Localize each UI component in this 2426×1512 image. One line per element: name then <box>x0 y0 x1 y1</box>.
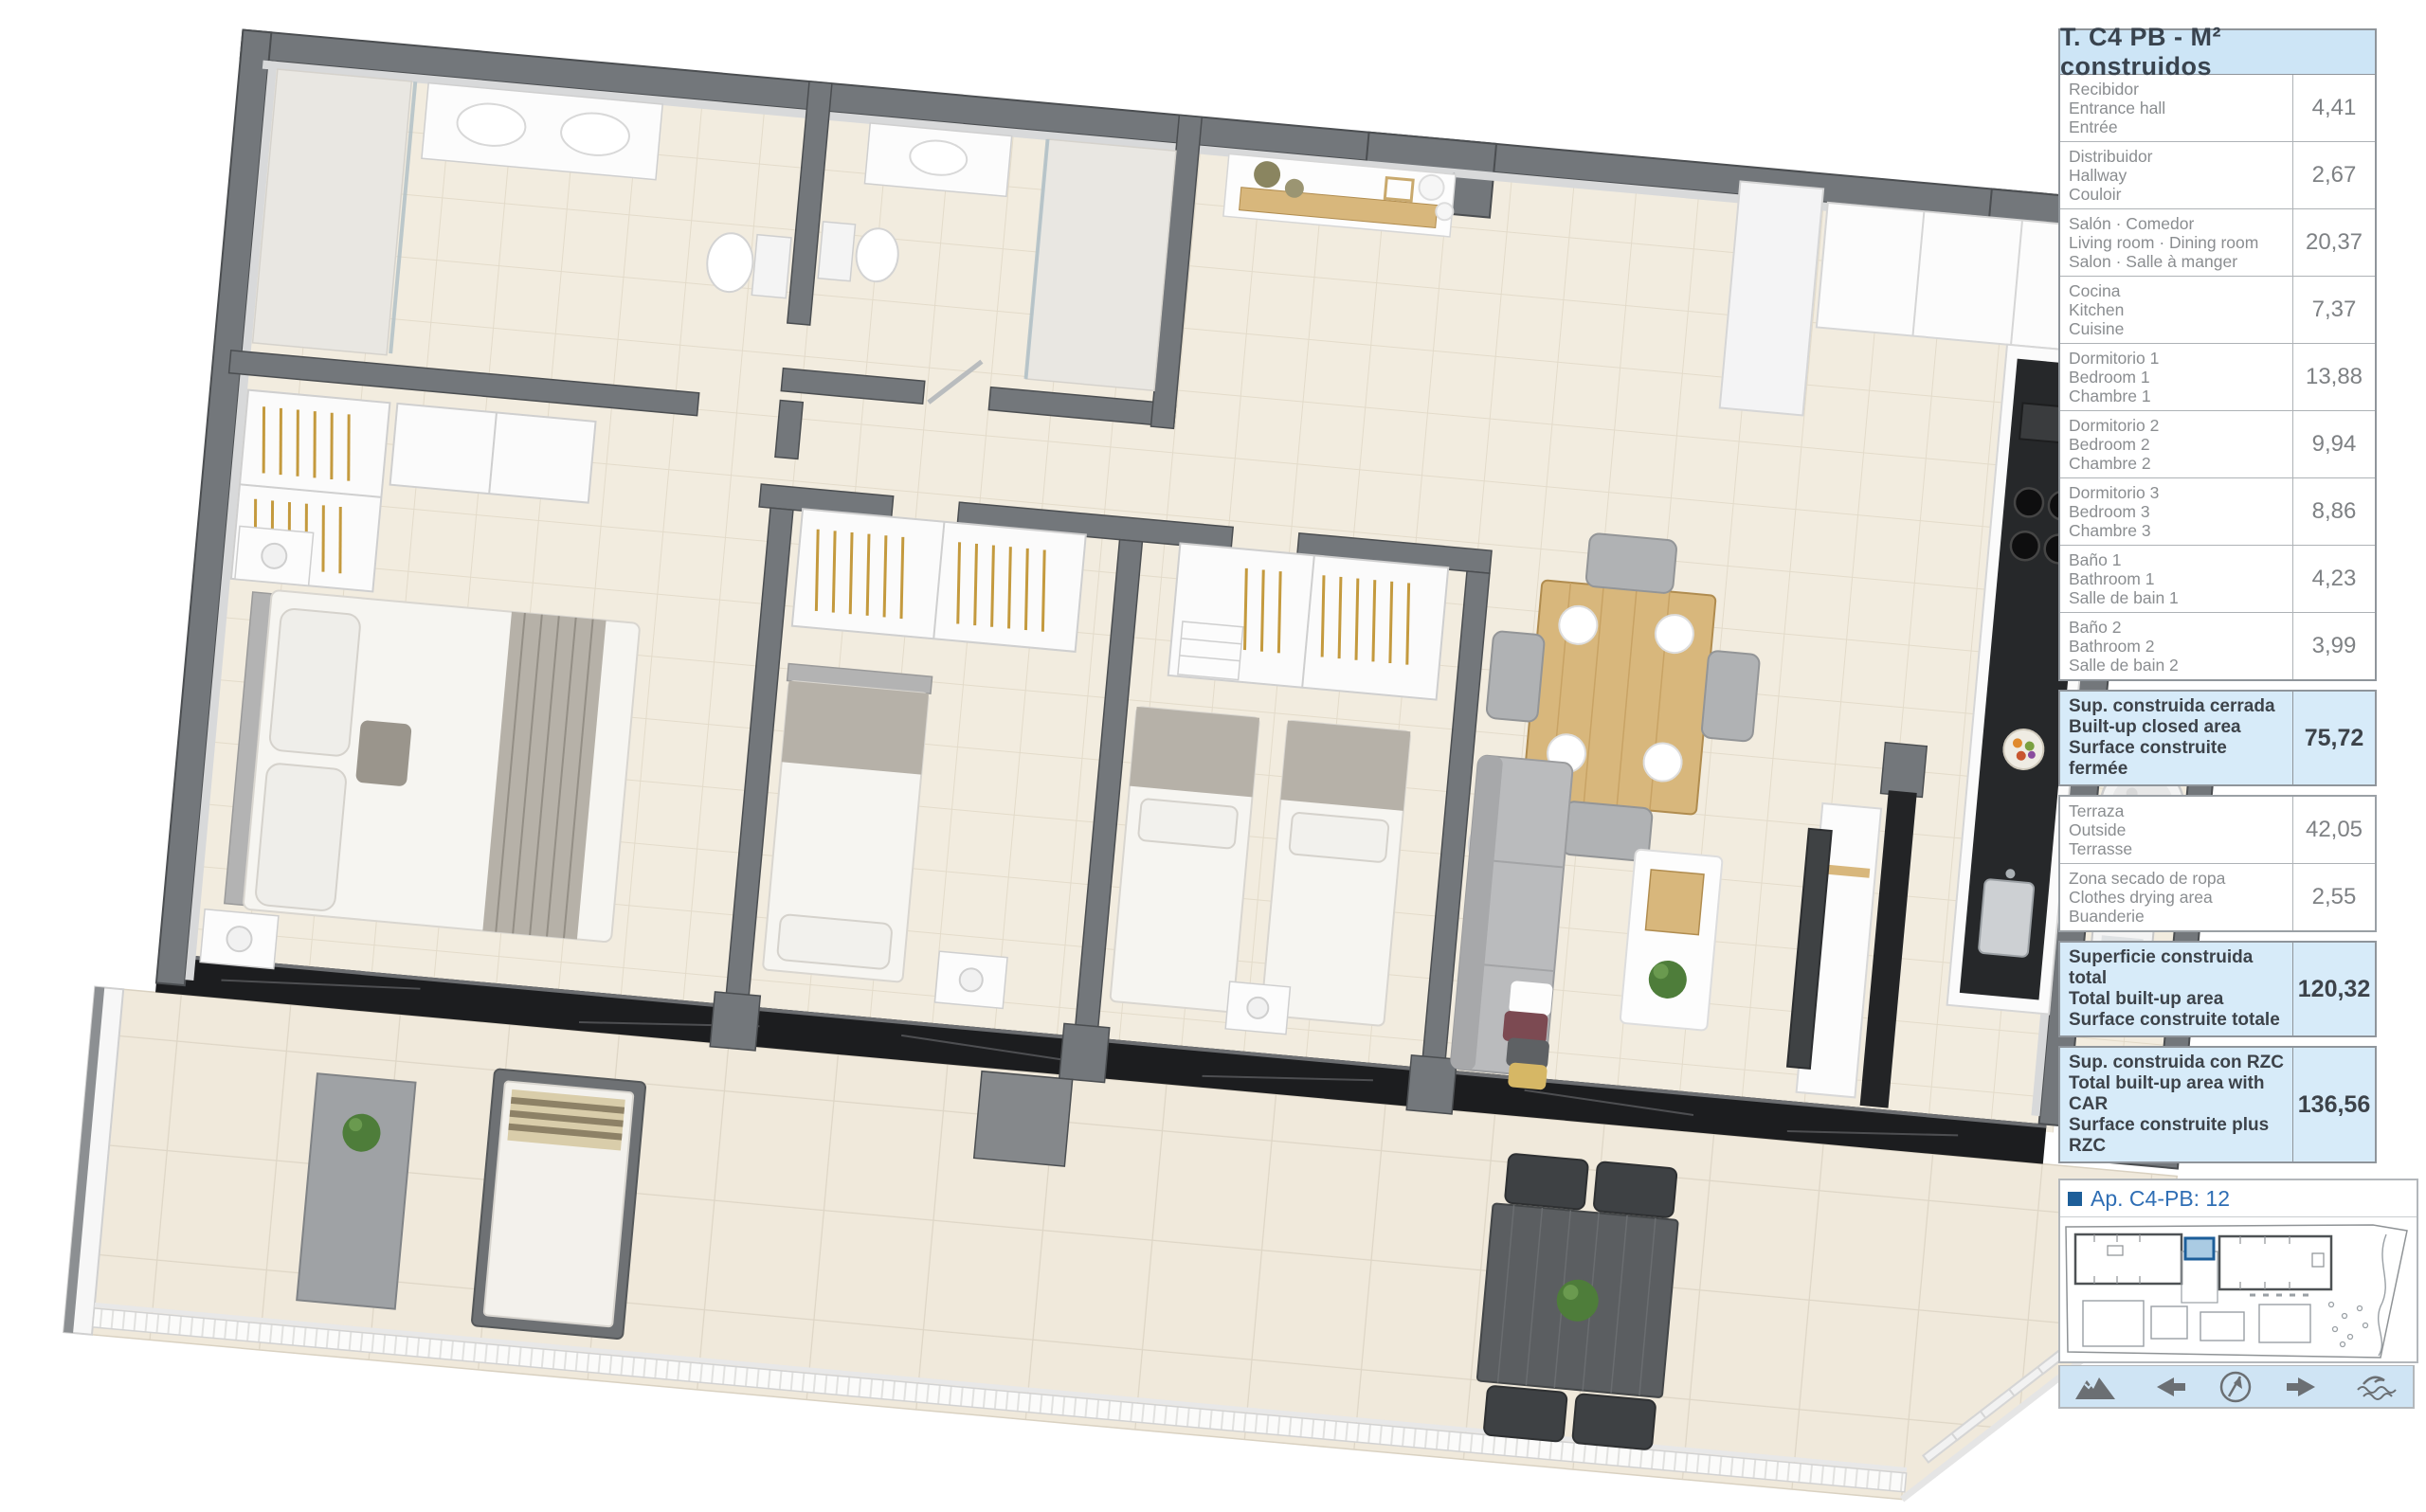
table-row: Baño 1 Bathroom 1 Salle de bain 1 4,23 <box>2060 545 2375 612</box>
pillow <box>255 763 347 911</box>
arrow-left-icon <box>2149 1374 2187 1400</box>
row-label-en: Bedroom 2 <box>2069 435 2287 454</box>
blanket <box>782 681 929 775</box>
table-row: Cocina Kitchen Cuisine 7,37 <box>2060 276 2375 343</box>
pillow <box>777 914 893 969</box>
row-value: 2,55 <box>2292 864 2375 930</box>
row-label-es: Distribuidor <box>2069 147 2287 166</box>
kitchen-sink <box>1979 879 2035 957</box>
pillow <box>1289 812 1389 862</box>
table-row: Dormitorio 3 Bedroom 3 Chambre 3 8,86 <box>2060 477 2375 545</box>
row-label-es: Dormitorio 1 <box>2069 349 2287 368</box>
apartment-ref: Ap. C4-PB: 12 <box>2091 1186 2230 1212</box>
dining-chair <box>1701 650 1760 742</box>
total-area-row: Superficie construida total Total built-… <box>2058 941 2377 1037</box>
row-label-en: Hallway <box>2069 166 2287 185</box>
area-summary-panel: T. C4 PB - M² construidos Recibidor Entr… <box>2058 28 2426 1409</box>
table-header: T. C4 PB - M² construidos <box>2060 30 2375 75</box>
terrace-bench <box>297 1073 415 1308</box>
pillow <box>269 608 361 757</box>
rzc-area-row: Sup. construida con RZC Total built-up a… <box>2058 1046 2377 1163</box>
cushion <box>355 720 412 787</box>
waves-icon <box>2354 1373 2399 1401</box>
row-value: 75,72 <box>2292 692 2375 784</box>
unit-marker-swatch <box>2068 1192 2082 1206</box>
toilet-tank <box>818 222 855 281</box>
location-map-panel: Ap. C4-PB: 12 <box>2058 1179 2418 1363</box>
table-row: Dormitorio 1 Bedroom 1 Chambre 1 13,88 <box>2060 343 2375 410</box>
row-label-fr: Entrée <box>2069 117 2287 136</box>
arrow-right-icon <box>2285 1374 2323 1400</box>
dining-chair <box>1585 533 1677 594</box>
table-lamp <box>1246 997 1269 1019</box>
row-label-en: Total built-up area with CAR <box>2069 1073 2287 1115</box>
row-label-en: Kitchen <box>2069 300 2287 319</box>
table-lamp <box>261 543 287 569</box>
row-value: 20,37 <box>2292 209 2375 276</box>
legend-icon-bar <box>2058 1365 2415 1409</box>
sofa-pillow <box>1508 1062 1548 1090</box>
blanket <box>1280 720 1410 810</box>
sphere-lamp <box>1436 202 1455 221</box>
row-label-en: Bathroom 2 <box>2069 637 2287 656</box>
row-label-fr: Chambre 3 <box>2069 521 2287 540</box>
table-row: Terraza Outside Terrasse 42,05 <box>2060 797 2375 863</box>
row-label-es: Zona secado de ropa <box>2069 869 2287 888</box>
row-value: 120,32 <box>2292 943 2375 1035</box>
row-label-fr: Salle de bain 2 <box>2069 656 2287 675</box>
row-label-en: Bedroom 3 <box>2069 502 2287 521</box>
row-label-es: Sup. construida cerrada <box>2069 696 2287 717</box>
table-row: Recibidor Entrance hall Entrée 4,41 <box>2060 75 2375 141</box>
area-table: T. C4 PB - M² construidos Recibidor Entr… <box>2058 28 2377 681</box>
sphere-lamp <box>1418 174 1444 201</box>
row-value: 9,94 <box>2292 411 2375 477</box>
row-label-fr: Couloir <box>2069 185 2287 204</box>
table-lamp <box>959 967 984 992</box>
row-label-es: Dormitorio 2 <box>2069 416 2287 435</box>
dining-chair <box>1486 631 1545 723</box>
pillow <box>1138 799 1239 849</box>
toilet-tank <box>751 235 791 298</box>
mountains-icon <box>2073 1373 2117 1401</box>
row-label-fr: Surface construite plus RZC <box>2069 1115 2287 1157</box>
row-label-es: Baño 1 <box>2069 550 2287 569</box>
row-value: 13,88 <box>2292 344 2375 410</box>
row-label-es: Sup. construida con RZC <box>2069 1053 2287 1073</box>
row-value: 3,99 <box>2292 613 2375 679</box>
row-label-es: Cocina <box>2069 281 2287 300</box>
row-label-fr: Terrasse <box>2069 839 2287 858</box>
row-label-en: Entrance hall <box>2069 99 2287 117</box>
row-label-fr: Chambre 1 <box>2069 387 2287 405</box>
row-label-en: Bathroom 1 <box>2069 569 2287 588</box>
row-value: 4,23 <box>2292 546 2375 612</box>
drawer-unit <box>1178 621 1243 680</box>
row-value: 136,56 <box>2292 1048 2375 1161</box>
row-label-en: Built-up closed area <box>2069 717 2287 738</box>
row-label-es: Superficie construida total <box>2069 947 2287 989</box>
row-label-en: Clothes drying area <box>2069 888 2287 907</box>
row-label-fr: Surface construite fermée <box>2069 738 2287 780</box>
compass-icon <box>2218 1370 2253 1404</box>
closed-area-row: Sup. construida cerrada Built-up closed … <box>2058 690 2377 786</box>
table-row: Distribuidor Hallway Couloir 2,67 <box>2060 141 2375 208</box>
table-row: Salón · Comedor Living room · Dining roo… <box>2060 208 2375 276</box>
row-value: 2,67 <box>2292 142 2375 208</box>
room-rows: Recibidor Entrance hall Entrée 4,41 Dist… <box>2060 75 2375 679</box>
row-value: 7,37 <box>2292 277 2375 343</box>
row-label-es: Terraza <box>2069 801 2287 820</box>
row-label-es: Baño 2 <box>2069 618 2287 637</box>
table-row: Baño 2 Bathroom 2 Salle de bain 2 3,99 <box>2060 612 2375 679</box>
striped-pillow <box>507 1089 625 1151</box>
row-label-es: Dormitorio 3 <box>2069 483 2287 502</box>
shower-tray <box>1025 139 1175 390</box>
row-label-en: Total built-up area <box>2069 989 2287 1010</box>
row-label-en: Living room · Dining room <box>2069 233 2287 252</box>
row-label-es: Recibidor <box>2069 80 2287 99</box>
tray <box>1645 870 1704 935</box>
row-label-en: Bedroom 1 <box>2069 368 2287 387</box>
shower-tray <box>253 69 412 355</box>
highlighted-unit <box>2185 1238 2214 1259</box>
row-label-fr: Salle de bain 1 <box>2069 588 2287 607</box>
row-label-es: Salón · Comedor <box>2069 214 2287 233</box>
row-label-fr: Salon · Salle à manger <box>2069 252 2287 271</box>
row-label-fr: Chambre 2 <box>2069 454 2287 473</box>
row-value: 42,05 <box>2292 797 2375 863</box>
row-value: 4,41 <box>2292 75 2375 141</box>
row-label-fr: Cuisine <box>2069 319 2287 338</box>
row-value: 8,86 <box>2292 478 2375 545</box>
table-row: Dormitorio 2 Bedroom 2 Chambre 2 9,94 <box>2060 410 2375 477</box>
site-plan-map <box>2060 1217 2413 1361</box>
row-label-fr: Buanderie <box>2069 907 2287 926</box>
blanket <box>1130 707 1259 797</box>
table-lamp <box>226 926 252 952</box>
row-label-en: Outside <box>2069 820 2287 839</box>
sofa-pillow <box>1509 981 1553 1017</box>
bedroom-1 <box>196 390 658 999</box>
outdoor-rows: Terraza Outside Terrasse 42,05 Zona seca… <box>2058 795 2377 932</box>
table-row: Zona secado de ropa Clothes drying area … <box>2060 863 2375 930</box>
row-label-fr: Surface construite totale <box>2069 1010 2287 1031</box>
